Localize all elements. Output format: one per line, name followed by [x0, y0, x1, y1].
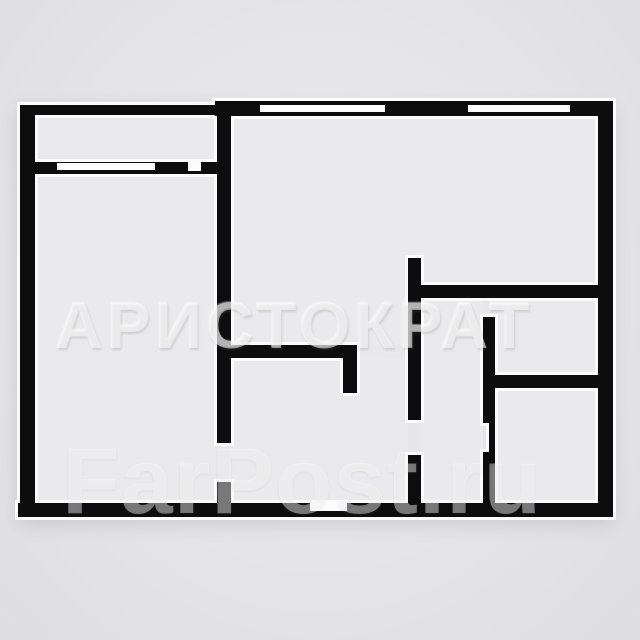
balcony-door-opening — [188, 162, 201, 171]
right-outer-wall — [598, 101, 613, 517]
room-balcony — [35, 115, 218, 162]
room-corridor — [231, 358, 408, 503]
bathroom-wall-bottom — [493, 375, 599, 388]
corridor-wall-horizontal — [231, 345, 357, 358]
room-bottom-right — [495, 388, 598, 503]
floor-plan-image: АРИСТОКРАТ FarPost.ru — [0, 0, 640, 640]
inner-wall-right-upper — [408, 258, 421, 420]
entry-door-opening — [310, 503, 347, 511]
center-wall-upper — [217, 115, 231, 443]
room-bathroom — [495, 297, 598, 375]
bathroom-wall-left-upper — [483, 317, 495, 423]
room-living-left — [231, 116, 408, 345]
bathroom-door-jamb — [489, 423, 495, 452]
bathroom-wall-top — [415, 285, 599, 298]
room-left — [34, 174, 217, 503]
window-right-room — [468, 105, 570, 112]
window-living-room — [260, 105, 385, 112]
bathroom-wall-left-lower — [483, 452, 495, 507]
corridor-wall-return — [343, 358, 357, 393]
center-wall-lower — [217, 482, 231, 510]
balcony-window — [57, 163, 155, 170]
balcony-parapet-wall — [22, 105, 218, 115]
room-inner-hall — [421, 297, 483, 503]
inner-wall-right-lower — [408, 455, 421, 507]
